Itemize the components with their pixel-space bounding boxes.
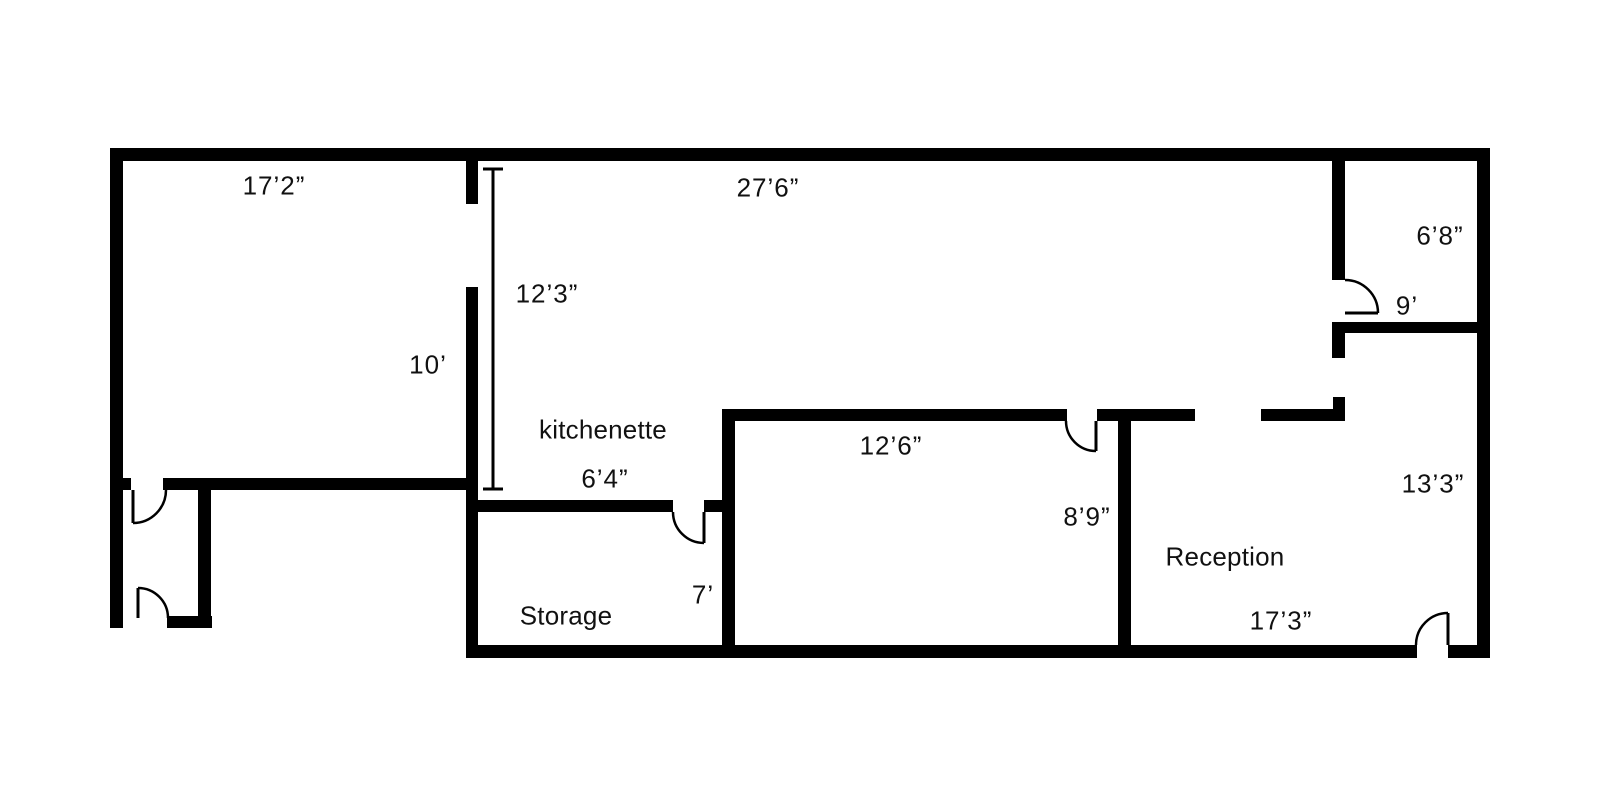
wall-room68-west-upper bbox=[1332, 158, 1345, 280]
wall-midroom-north-east bbox=[1097, 409, 1195, 421]
floorplan-canvas: kitchenette Storage Reception 17’2” 27’6… bbox=[0, 0, 1600, 805]
dimension-label-8-9: 8’9” bbox=[1063, 502, 1110, 533]
door-arc-reception-exterior bbox=[1416, 613, 1448, 645]
wall-exterior-bottom-east bbox=[1448, 645, 1490, 658]
dimension-label-12-3: 12’3” bbox=[516, 279, 579, 310]
wall-leftroom-south-stub bbox=[110, 478, 131, 490]
wall-exterior-right bbox=[1477, 148, 1490, 658]
room-label-kitchenette: kitchenette bbox=[539, 415, 667, 446]
dimension-label-13-3: 13’3” bbox=[1402, 469, 1465, 500]
wall-divider-south bbox=[466, 287, 478, 658]
dimension-label-7: 7’ bbox=[692, 580, 714, 611]
dimension-label-12-6: 12’6” bbox=[860, 431, 923, 462]
door-arc-vestibule-entry bbox=[138, 588, 168, 618]
dimension-label-17-2: 17’2” bbox=[243, 171, 306, 202]
wall-exterior-left bbox=[110, 148, 123, 628]
room-label-reception: Reception bbox=[1166, 542, 1285, 573]
wall-midroom-north bbox=[722, 409, 1067, 421]
wall-midroom-east bbox=[1118, 409, 1131, 658]
dimension-label-27-6: 27’6” bbox=[737, 173, 800, 204]
wall-exterior-bottom-west bbox=[467, 645, 1417, 658]
wall-kitchenette-south-east bbox=[704, 500, 724, 512]
door-arc-storage bbox=[673, 512, 704, 543]
dimension-label-6-4: 6’4” bbox=[581, 464, 628, 495]
wall-reception-north-stub bbox=[1333, 397, 1345, 421]
door-arc-room68 bbox=[1345, 280, 1378, 313]
door-arc-vestibule-upper bbox=[133, 490, 166, 523]
door-arc-midroom bbox=[1066, 421, 1096, 451]
dimension-label-17-3: 17’3” bbox=[1250, 606, 1313, 637]
dimension-label-9: 9’ bbox=[1396, 291, 1418, 322]
dimension-label-6-8: 6’8” bbox=[1416, 221, 1463, 252]
wall-exterior-top bbox=[112, 148, 1490, 161]
wall-kitchenette-south-west bbox=[466, 500, 673, 512]
dimension-label-10: 10’ bbox=[409, 350, 447, 381]
wall-room68-south bbox=[1340, 322, 1490, 333]
door-swing-overlay bbox=[0, 0, 1600, 805]
wall-divider-north-stub bbox=[466, 158, 478, 204]
room-label-storage: Storage bbox=[520, 601, 612, 632]
wall-vestibule-east bbox=[198, 478, 211, 628]
wall-midroom-west bbox=[722, 409, 735, 658]
